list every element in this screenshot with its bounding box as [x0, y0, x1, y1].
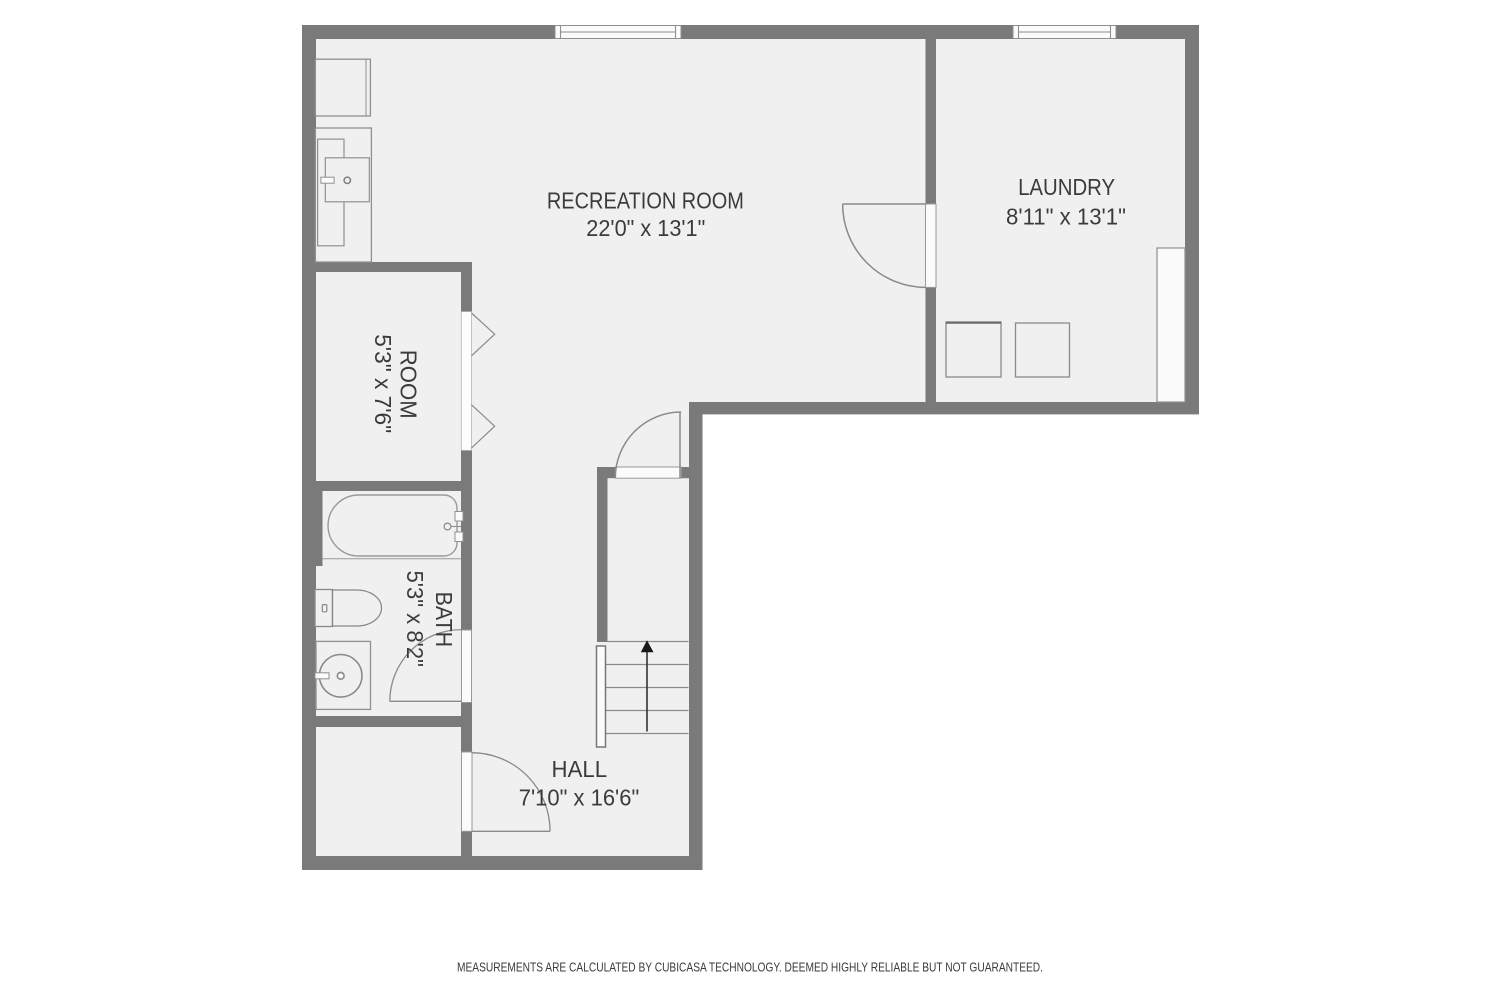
svg-text:8'11" x 13'1": 8'11" x 13'1"	[1006, 204, 1126, 230]
svg-text:RECREATION ROOM: RECREATION ROOM	[547, 188, 744, 214]
svg-text:MEASUREMENTS ARE CALCULATED BY: MEASUREMENTS ARE CALCULATED BY CUBICASA …	[457, 959, 1043, 974]
svg-text:LAUNDRY: LAUNDRY	[1018, 174, 1115, 200]
svg-text:ROOM: ROOM	[396, 350, 422, 419]
svg-text:7'10" x 16'6": 7'10" x 16'6"	[519, 785, 640, 811]
svg-text:22'0" x 13'1": 22'0" x 13'1"	[586, 215, 705, 241]
svg-text:5'3" x 8'2": 5'3" x 8'2"	[402, 570, 428, 667]
svg-text:HALL: HALL	[552, 756, 608, 782]
svg-text:BATH: BATH	[431, 592, 457, 648]
svg-text:5'3" x 7'6": 5'3" x 7'6"	[370, 334, 396, 433]
